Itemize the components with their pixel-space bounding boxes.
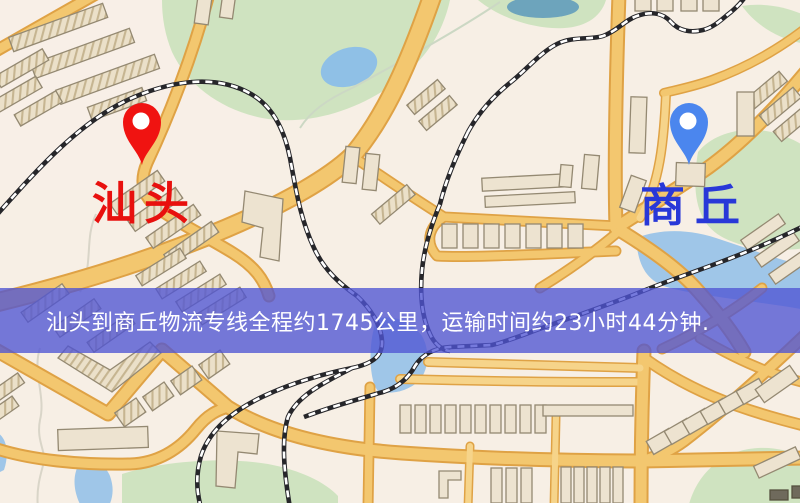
map-screenshot: 汕头到商丘物流专线全程约1745公里，运输时间约23小时44分钟. 汕头 商丘 — [0, 0, 800, 503]
blue-pin-body — [670, 103, 708, 165]
destination-marker[interactable] — [667, 101, 711, 167]
map-canvas[interactable] — [0, 0, 800, 503]
red-pin-hole — [133, 113, 150, 130]
red-pin-body — [123, 103, 161, 165]
route-info-text: 汕头到商丘物流专线全程约1745公里，运输时间约23小时44分钟. — [46, 305, 709, 337]
route-info-banner: 汕头到商丘物流专线全程约1745公里，运输时间约23小时44分钟. — [0, 288, 800, 353]
red-pin-icon — [120, 101, 164, 167]
blue-pin-icon — [667, 101, 711, 167]
blue-pin-hole — [680, 113, 697, 130]
destination-label: 商丘 — [640, 183, 750, 228]
origin-marker[interactable] — [120, 101, 164, 167]
origin-label: 汕头 — [92, 181, 196, 226]
